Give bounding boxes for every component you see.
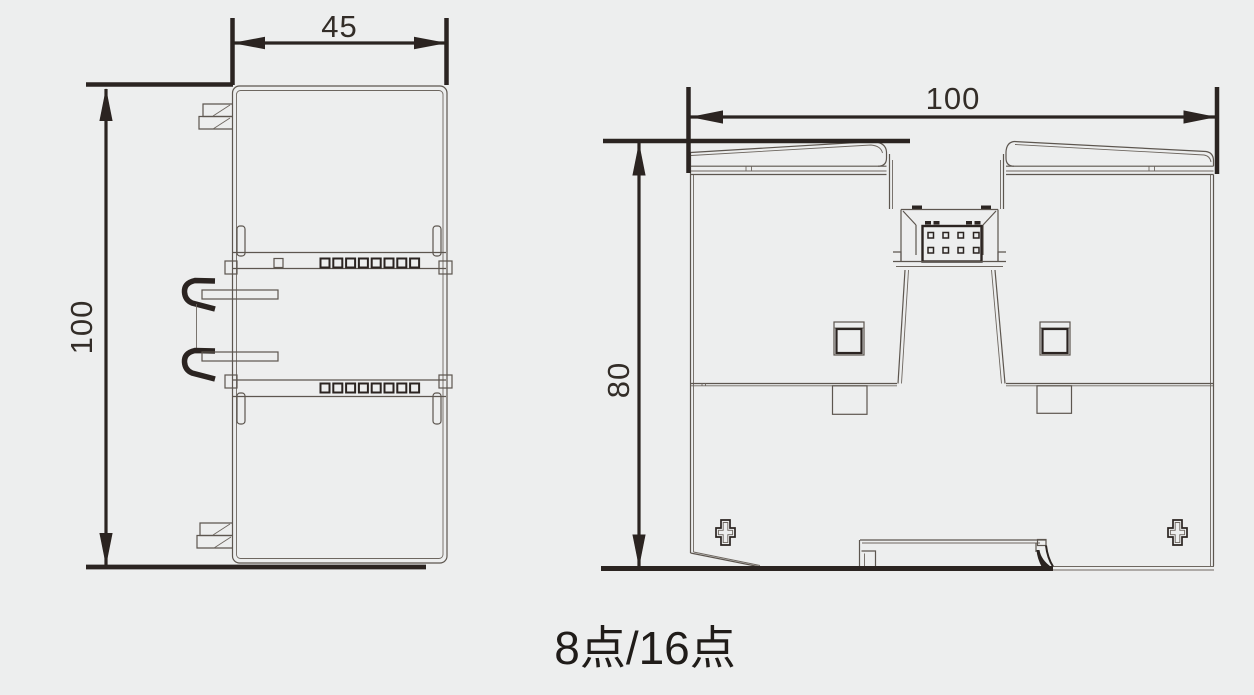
dim-label-45: 45 xyxy=(321,9,357,44)
dim-label-100-side: 100 xyxy=(64,300,99,355)
connector-pins xyxy=(928,233,979,254)
mounting-holes-square xyxy=(833,322,1072,414)
terminal-pins-upper xyxy=(321,259,420,268)
terminal-pins-lower xyxy=(321,384,420,393)
din-clip-left xyxy=(690,142,887,175)
technical-drawing-page: 45 100 xyxy=(0,0,1254,695)
expansion-connector xyxy=(893,206,1006,384)
connector-socket xyxy=(923,226,982,262)
cross-holes xyxy=(716,520,1187,545)
retaining-hooks xyxy=(184,281,278,380)
din-clip-right xyxy=(1006,142,1214,172)
dimension-rear-width: 100 xyxy=(689,81,1218,174)
dimension-rear-height: 80 xyxy=(601,141,1053,569)
side-tab-bottom xyxy=(197,523,232,548)
side-view xyxy=(184,86,452,563)
rear-view xyxy=(690,142,1214,571)
terminal-block-lower xyxy=(225,375,452,424)
dim-label-80: 80 xyxy=(601,362,636,398)
terminal-block-upper xyxy=(225,226,452,274)
rear-body xyxy=(690,154,1214,570)
dim-label-100-rear: 100 xyxy=(926,81,981,116)
technical-drawing: 45 100 xyxy=(0,0,1254,695)
side-tab-top xyxy=(199,104,232,129)
caption: 8点/16点 xyxy=(554,622,736,674)
din-latch xyxy=(860,540,1054,568)
dimension-side-width: 45 xyxy=(232,9,447,85)
side-body xyxy=(233,86,448,563)
dimension-side-height: 100 xyxy=(64,85,426,568)
